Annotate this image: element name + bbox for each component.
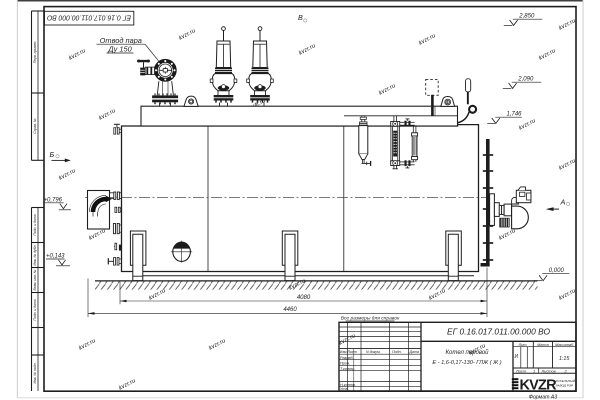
svg-text:Формат А3: Формат А3	[529, 394, 557, 400]
svg-text:N докум.: N докум.	[366, 350, 381, 354]
svg-text:А: А	[560, 198, 566, 207]
svg-text:Н.контр.: Н.контр.	[340, 383, 356, 387]
svg-text:ЕГ 0.16.017.011.00.000 ВО: ЕГ 0.16.017.011.00.000 ВО	[447, 327, 550, 337]
svg-text:Справ. №: Справ. №	[33, 118, 37, 134]
svg-text:Утв.: Утв.	[340, 387, 349, 391]
svg-text:Разраб.: Разраб.	[340, 356, 354, 360]
svg-text:Ду 150: Ду 150	[107, 45, 132, 54]
svg-text:Б: Б	[50, 150, 55, 159]
svg-text:Подп.: Подп.	[392, 350, 402, 354]
svg-text:Подп. и дата: Подп. и дата	[33, 214, 37, 235]
svg-text:Листов: Листов	[541, 368, 556, 373]
svg-text:ЗАВОД РЭР: ЗАВОД РЭР	[556, 383, 575, 387]
svg-text:Подп. и дата: Подп. и дата	[33, 299, 37, 320]
svg-text:1,746: 1,746	[507, 112, 523, 118]
svg-text:Масса: Масса	[537, 342, 549, 347]
svg-text:Отвод пара: Отвод пара	[100, 36, 142, 45]
svg-text:Перв. примен.: Перв. примен.	[33, 41, 37, 64]
svg-text:КОТЕЛЬНЫЙ: КОТЕЛЬНЫЙ	[556, 379, 576, 383]
svg-text:0,000: 0,000	[549, 268, 565, 274]
svg-text:Инв. № подл.: Инв. № подл.	[33, 362, 37, 383]
svg-text:Лит.: Лит.	[517, 342, 527, 347]
svg-text:Котел паровой: Котел паровой	[445, 349, 489, 356]
svg-text:Взам. инв. №: Взам. инв. №	[33, 269, 37, 290]
svg-text:ЕГ 0.16.017.011.00.000 ВО: ЕГ 0.16.017.011.00.000 ВО	[47, 14, 131, 23]
svg-text:Е - 1,6-0,17-130- ГЛЖ ( Ж ): Е - 1,6-0,17-130- ГЛЖ ( Ж )	[432, 360, 501, 366]
svg-text:Масштаб: Масштаб	[555, 342, 574, 347]
svg-text:1: 1	[533, 368, 535, 373]
svg-text:1:15: 1:15	[559, 356, 570, 362]
svg-text:Инв. № дубл.: Инв. № дубл.	[33, 245, 37, 266]
svg-text:Пров.: Пров.	[340, 361, 350, 365]
svg-text:KVZR: KVZR	[520, 378, 558, 394]
svg-text:В: В	[298, 13, 303, 22]
svg-text:Лист: Лист	[515, 368, 527, 373]
svg-text:Дата: Дата	[409, 350, 419, 354]
svg-text:4080: 4080	[297, 295, 311, 301]
svg-text:Изм.Лист: Изм.Лист	[340, 350, 357, 354]
svg-text:4460: 4460	[283, 307, 297, 313]
svg-text:И: И	[515, 354, 519, 360]
svg-text:2,090: 2,090	[517, 77, 534, 83]
svg-text:2,850: 2,850	[518, 14, 535, 20]
svg-text:Т.контр.: Т.контр.	[340, 367, 355, 371]
